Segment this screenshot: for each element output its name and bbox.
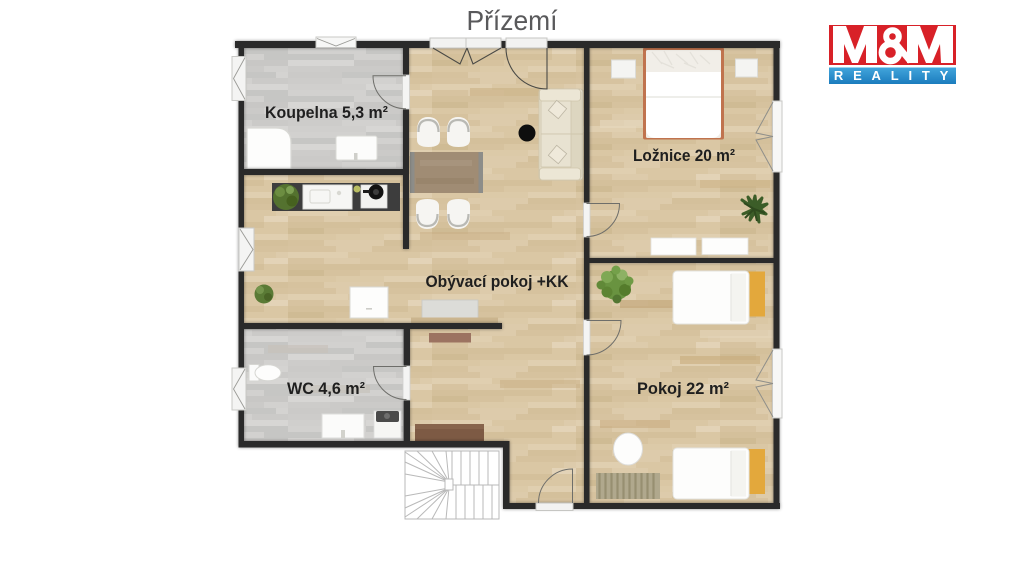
svg-text:WC 4,6 m²: WC 4,6 m² xyxy=(287,379,365,398)
svg-text:Koupelna 5,3 m²: Koupelna 5,3 m² xyxy=(265,103,388,122)
svg-text:Pokoj 22 m²: Pokoj 22 m² xyxy=(637,379,729,398)
svg-text:Ložnice 20 m²: Ložnice 20 m² xyxy=(633,146,735,165)
svg-text:Obývací pokoj +KK: Obývací pokoj +KK xyxy=(426,272,570,291)
svg-text:Přízemí: Přízemí xyxy=(467,5,558,36)
svg-text:REALITY: REALITY xyxy=(834,68,958,83)
